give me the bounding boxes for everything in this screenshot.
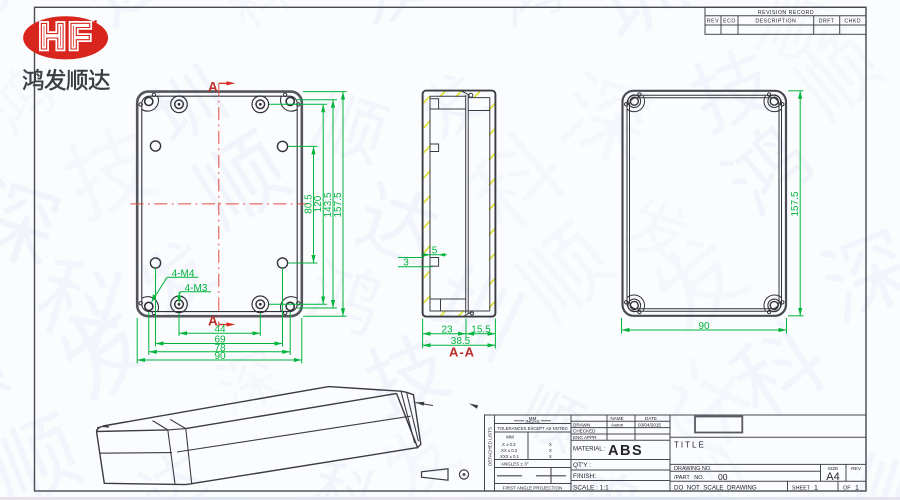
svg-text:深: 深: [549, 60, 663, 181]
svg-text:DRAWN: DRAWN: [573, 422, 590, 427]
svg-text:157.5: 157.5: [333, 192, 344, 217]
svg-text:ANGLES ± 3°: ANGLES ± 3°: [501, 462, 529, 467]
svg-text:DO NOT SCALE DRAWING: DO NOT SCALE DRAWING: [674, 485, 757, 492]
svg-text:顺: 顺: [0, 400, 95, 500]
svg-text:REVISION RECORD: REVISION RECORD: [758, 10, 814, 16]
svg-text:ECO: ECO: [723, 19, 736, 25]
svg-text:DRFT: DRFT: [819, 19, 835, 25]
svg-text:90: 90: [214, 351, 226, 362]
svg-text:圳: 圳: [578, 0, 705, 60]
svg-text:SCALE : 1:1: SCALE : 1:1: [573, 485, 609, 492]
svg-text:技: 技: [51, 112, 170, 237]
svg-text:OF: OF: [843, 485, 851, 491]
svg-text:X: X: [549, 442, 552, 447]
svg-text:23: 23: [441, 325, 453, 336]
svg-text:5: 5: [432, 246, 438, 257]
svg-text:科: 科: [215, 0, 304, 44]
svg-text:MM: MM: [506, 435, 514, 440]
svg-text:TITLE: TITLE: [674, 441, 706, 450]
svg-text:MATERIAL :: MATERIAL :: [573, 447, 606, 453]
svg-text:DATE: DATE: [645, 416, 657, 421]
svg-text:00: 00: [718, 472, 728, 482]
svg-text:Aaron: Aaron: [611, 422, 624, 427]
svg-text:4-M4: 4-M4: [172, 268, 195, 279]
svg-text:A: A: [208, 80, 218, 95]
svg-text:.XX ± 0.2: .XX ± 0.2: [500, 448, 518, 453]
svg-text:DRAWING NO.: DRAWING NO.: [674, 466, 712, 472]
svg-text:X: X: [549, 454, 552, 459]
svg-text:HF: HF: [39, 16, 94, 57]
svg-text:鸿发顺达: 鸿发顺达: [22, 69, 110, 94]
svg-text:A4: A4: [826, 471, 839, 483]
svg-text:1: 1: [814, 485, 818, 492]
svg-text:90: 90: [698, 321, 710, 332]
svg-text:SHEET: SHEET: [792, 485, 811, 491]
svg-text:QT'Y :: QT'Y :: [573, 462, 591, 469]
svg-text:CHKD: CHKD: [844, 19, 861, 25]
svg-text:TOLERANCES EXCEPT AS NOTED: TOLERANCES EXCEPT AS NOTED: [497, 426, 567, 431]
svg-text:鸿: 鸿: [488, 0, 571, 40]
svg-text:深: 深: [808, 215, 900, 340]
svg-text:发: 发: [339, 0, 442, 42]
svg-text:ABS: ABS: [608, 443, 643, 459]
svg-text:顺: 顺: [0, 325, 20, 426]
svg-text:INCHS: INCHS: [525, 419, 539, 424]
svg-text:15.5: 15.5: [471, 325, 491, 336]
svg-text:FIRST ANGLE PROJECTION: FIRST ANGLE PROJECTION: [503, 486, 562, 491]
svg-text:A-A: A-A: [449, 345, 475, 360]
svg-text:DETACHED LISTS: DETACHED LISTS: [488, 427, 493, 466]
svg-text:ENG APPR: ENG APPR: [573, 435, 597, 440]
svg-text:顺: 顺: [303, 80, 396, 178]
svg-text:REV: REV: [851, 466, 862, 472]
svg-text:4-M3: 4-M3: [185, 283, 208, 294]
svg-text:3: 3: [403, 258, 409, 269]
svg-text:03/04/2015: 03/04/2015: [638, 422, 661, 427]
svg-text:157.5: 157.5: [790, 191, 801, 216]
svg-text:X: X: [549, 448, 552, 453]
svg-text:.X ± 0.3: .X ± 0.3: [501, 442, 516, 447]
svg-text:FINISH:: FINISH:: [573, 473, 596, 480]
svg-text:REV: REV: [707, 19, 719, 25]
svg-text:1: 1: [855, 485, 859, 492]
svg-text:发: 发: [407, 61, 499, 154]
svg-text:NAME: NAME: [610, 416, 623, 421]
svg-text:/PART NO.: /PART NO.: [674, 475, 705, 481]
svg-text:.XXX ± 0.1: .XXX ± 0.1: [499, 454, 520, 459]
svg-text:DESCRIPTION: DESCRIPTION: [755, 19, 796, 25]
svg-text:CHECKED: CHECKED: [573, 429, 596, 434]
